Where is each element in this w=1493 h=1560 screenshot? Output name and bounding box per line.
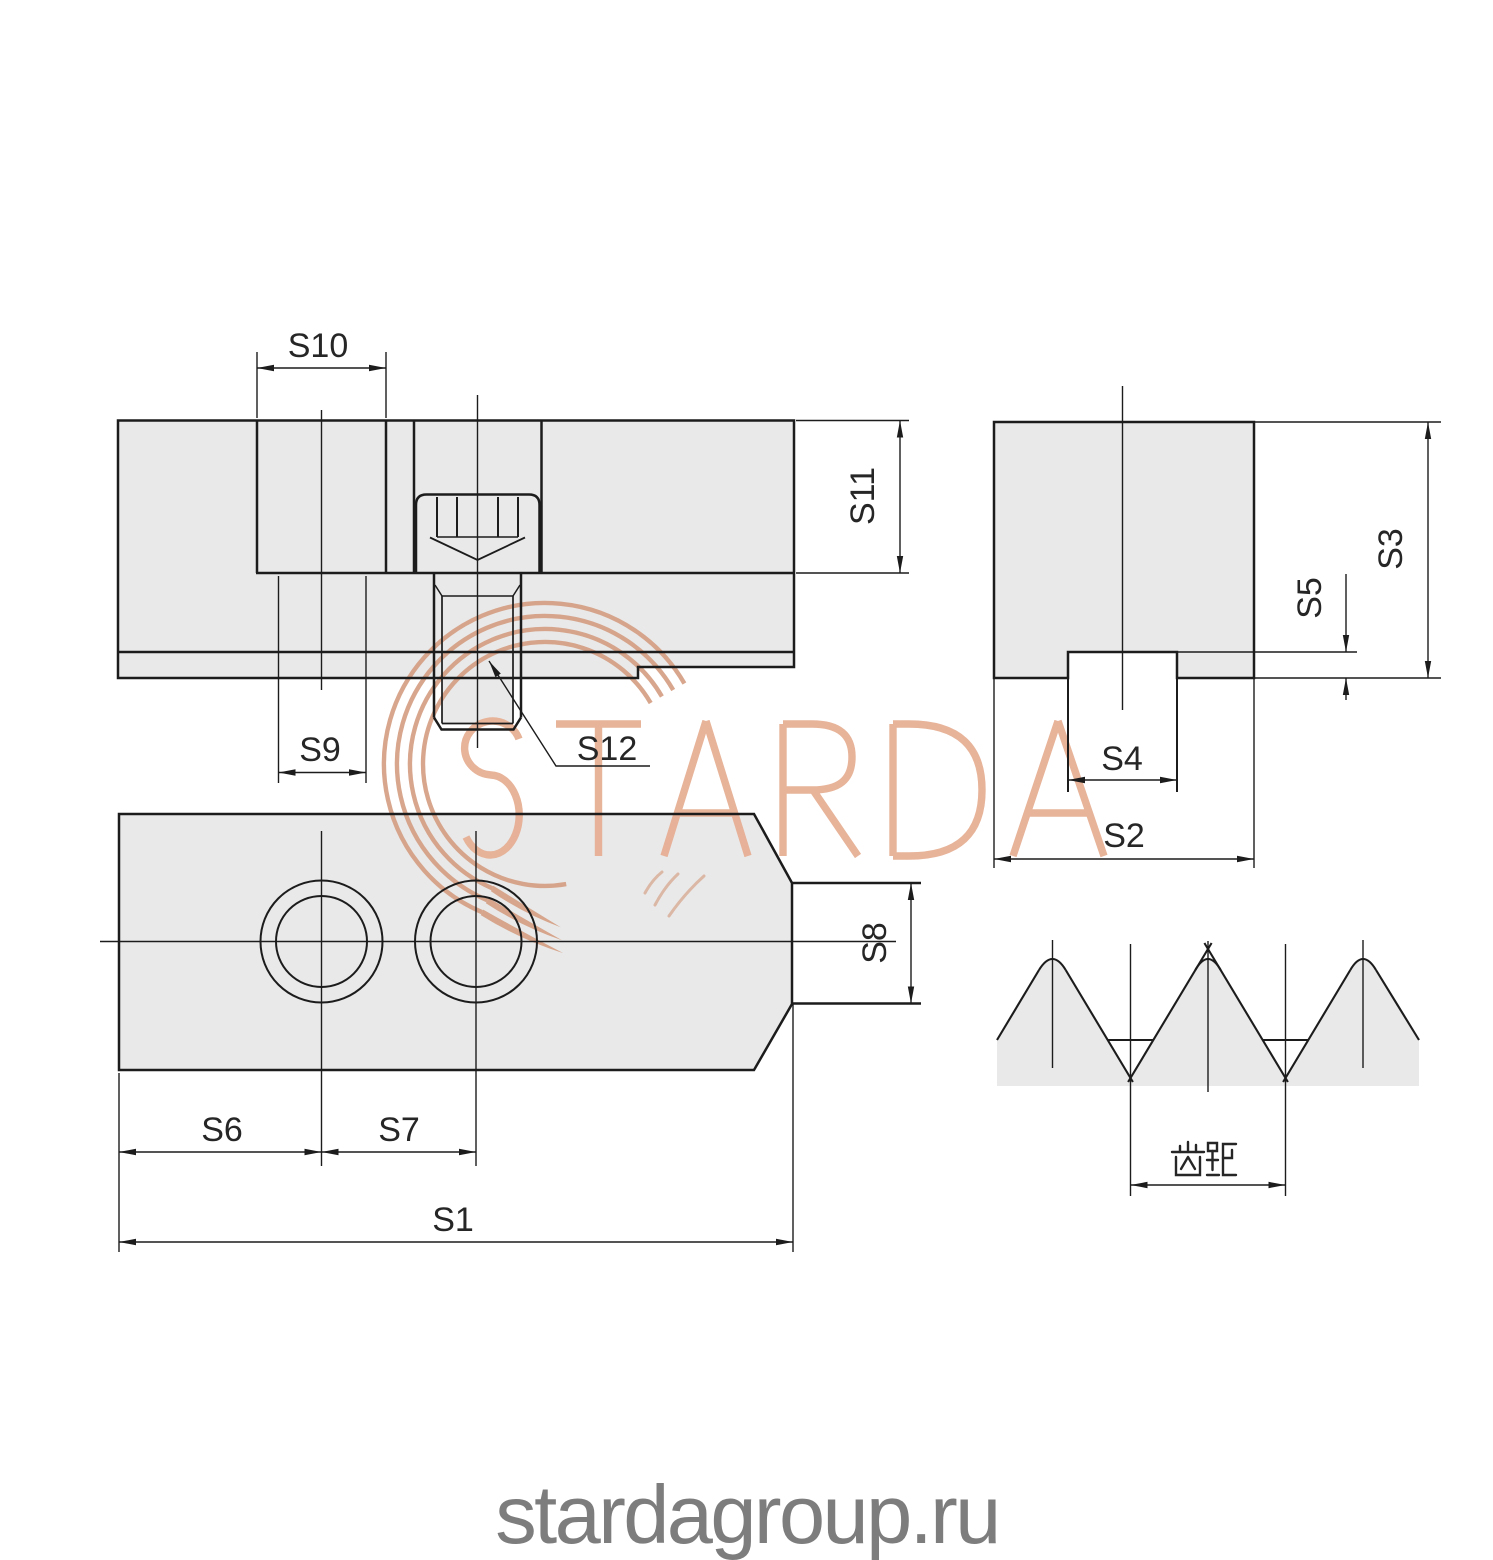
svg-text:S10: S10 [288,327,349,365]
svg-text:S6: S6 [201,1111,243,1149]
svg-text:S8: S8 [856,922,894,964]
svg-text:S11: S11 [844,467,882,525]
svg-text:S9: S9 [299,731,341,769]
svg-text:S12: S12 [577,730,638,768]
svg-text:S1: S1 [432,1201,474,1239]
svg-text:S3: S3 [1372,528,1410,570]
svg-text:S4: S4 [1101,740,1143,778]
svg-text:S7: S7 [378,1111,420,1149]
svg-text:S2: S2 [1103,817,1145,855]
svg-text:stardagroup.ru: stardagroup.ru [495,1468,998,1560]
svg-text:S5: S5 [1291,577,1329,619]
